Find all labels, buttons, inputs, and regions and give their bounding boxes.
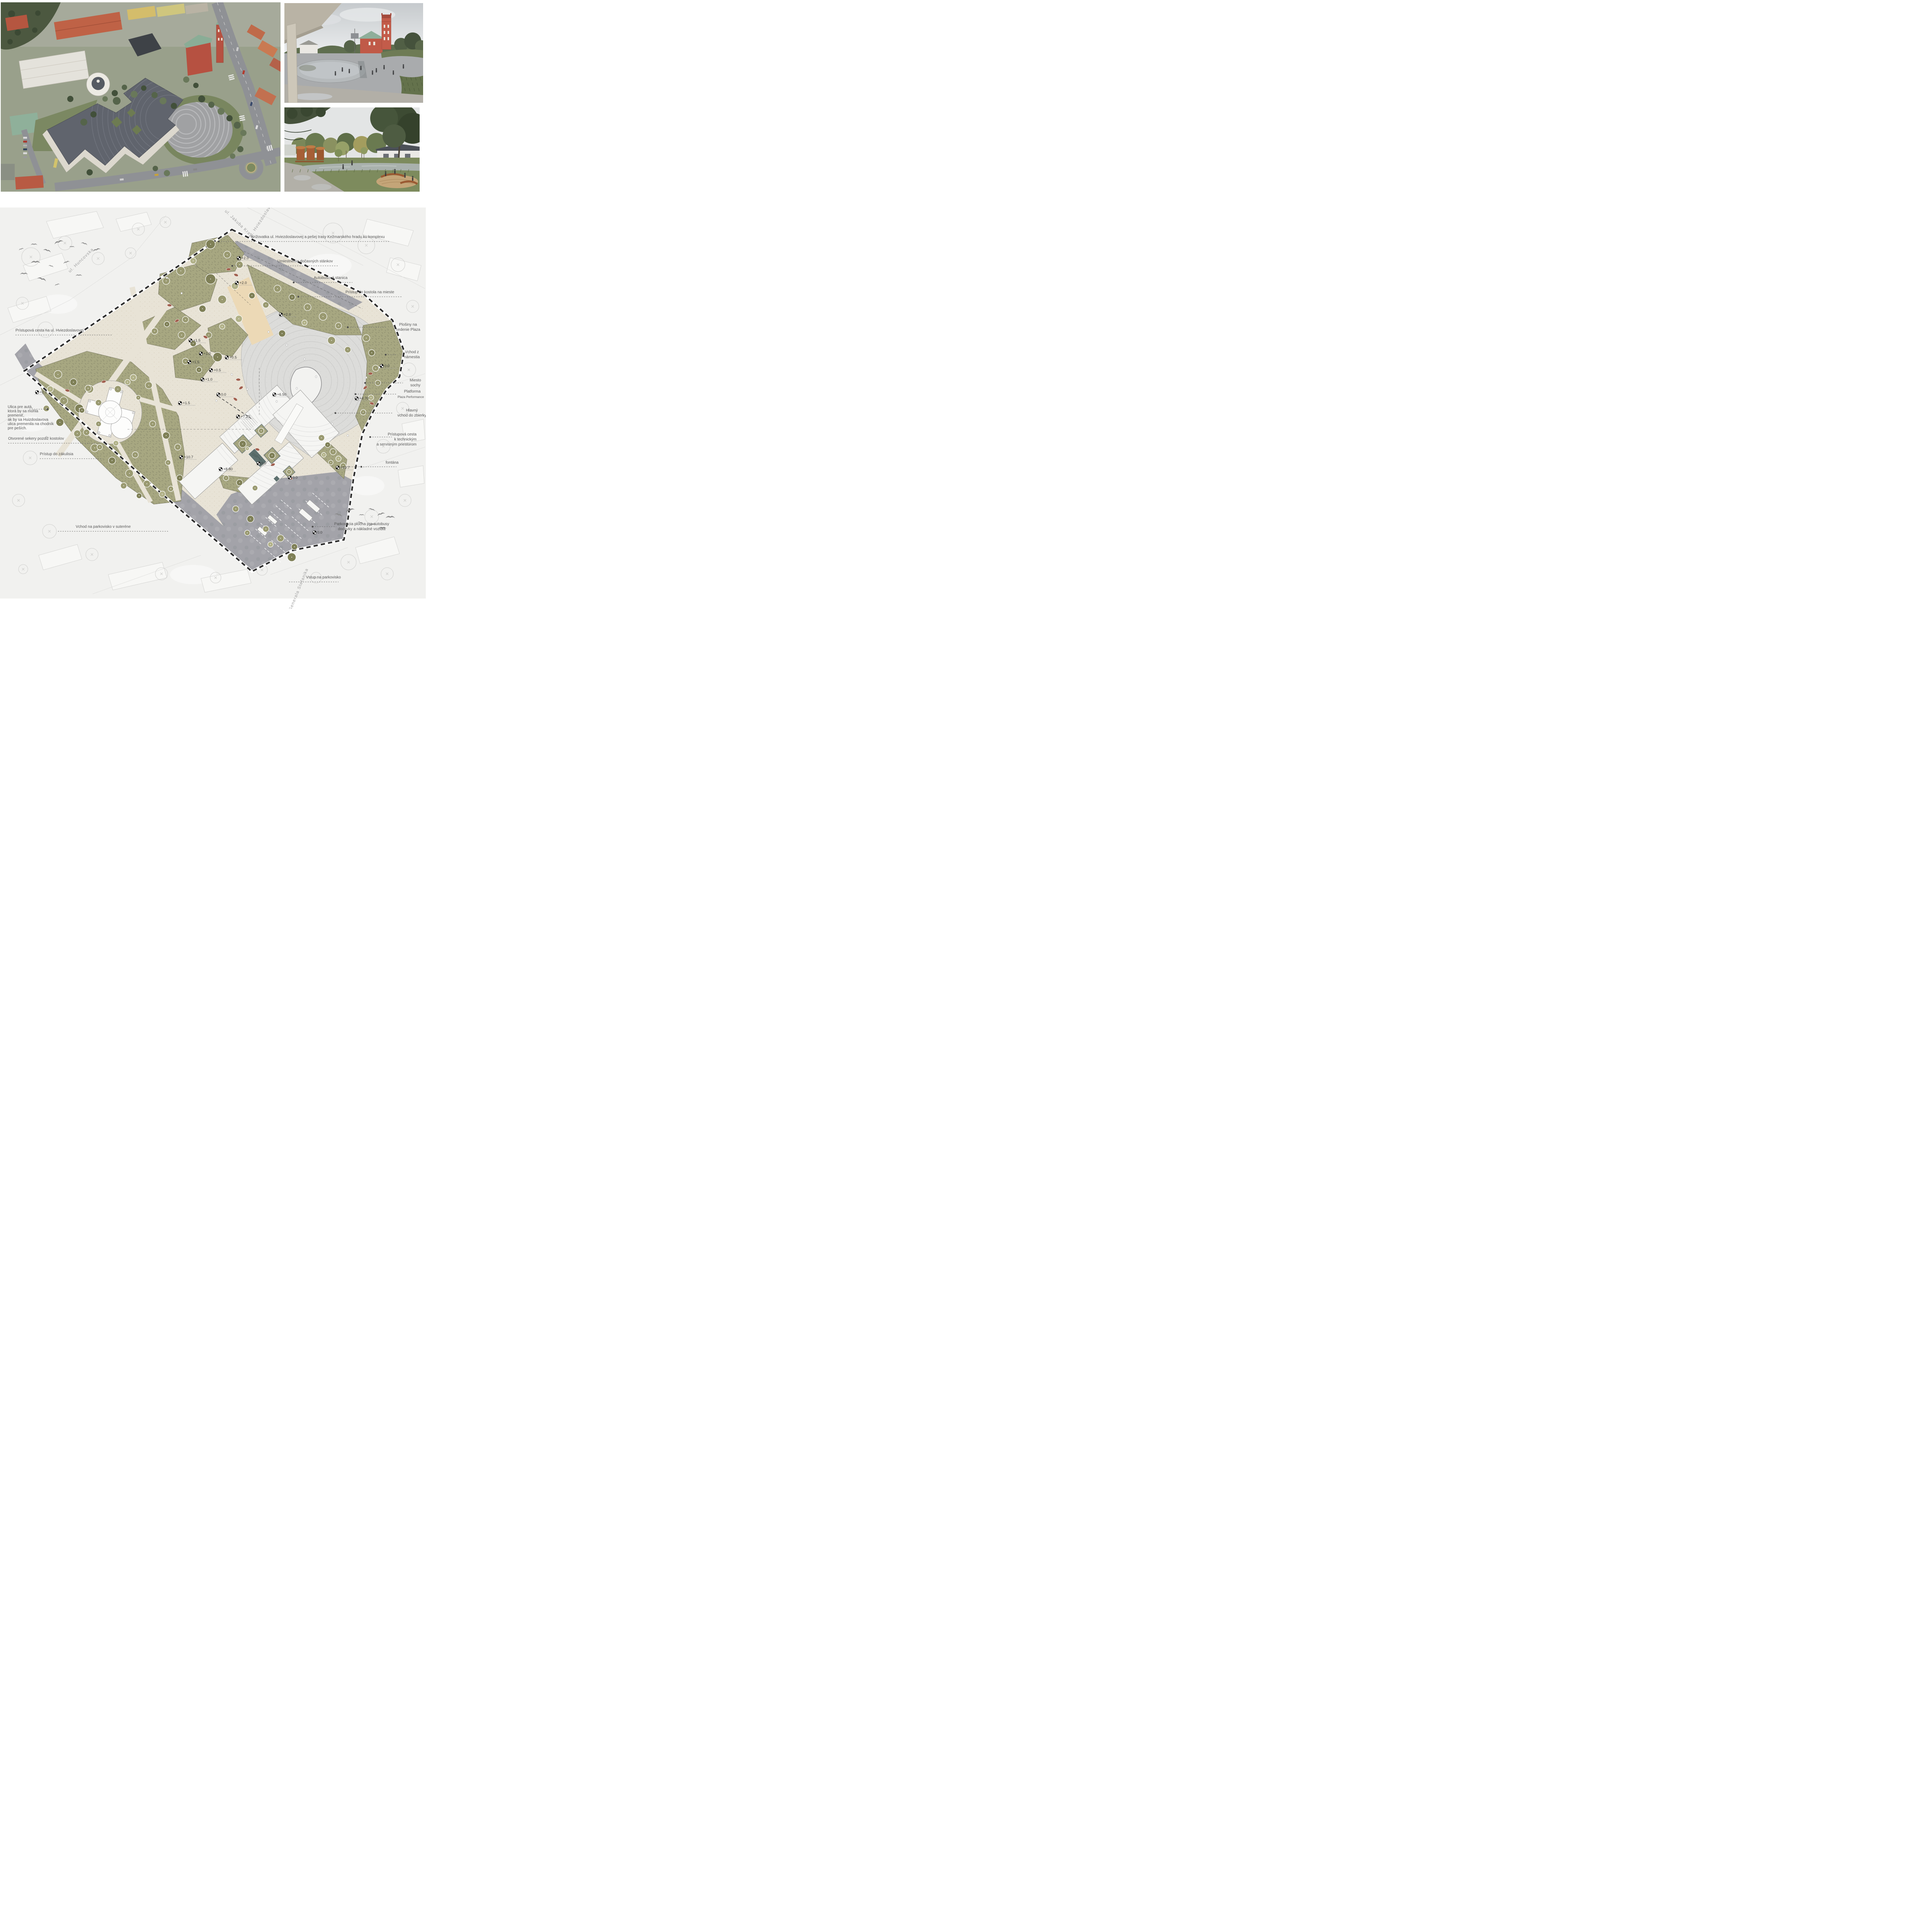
elevation-value: +2.0 [284,313,291,317]
tree [235,315,242,322]
distant-building [284,145,296,155]
tree [328,460,333,465]
leader-dot [364,382,366,384]
label-text: Plaza Performance [398,395,424,399]
tree [122,85,127,90]
tree [168,486,173,492]
tree [218,108,224,115]
elevation-value: 0.0 [221,393,226,397]
elevation-value: +0.5 [214,368,221,372]
tree [245,447,249,451]
tree [206,240,215,249]
tree [263,302,269,308]
tree [233,506,239,512]
tree [190,258,196,264]
tree [230,153,235,159]
tree [171,103,177,109]
person-figure [366,376,367,378]
person-figure [216,400,217,401]
tree [175,444,181,450]
tree [198,95,205,102]
tree [208,102,214,108]
aerial-photo [1,2,281,192]
tree [369,350,375,356]
tree [304,304,311,311]
tree [74,430,81,437]
tree [247,515,254,522]
tree [287,553,296,561]
label-text: Prístup do zákulisia [40,452,73,456]
tree [287,469,291,474]
leader-dot [293,282,295,284]
person-silhouette [360,66,361,70]
tree [206,274,216,284]
tree [90,111,97,117]
leader-dot [47,408,49,410]
tree [236,480,243,486]
sign-boards [351,33,359,39]
tree-reflection [299,65,316,71]
tree [218,295,226,304]
park-photo [284,107,420,192]
tree [328,337,335,344]
tree [97,444,102,450]
tree [153,166,158,171]
tree [277,535,284,542]
person-figure [315,376,317,378]
tree [80,119,87,126]
plan-label: Plaza Performance [398,395,424,399]
tree [259,428,264,434]
elevation-value: 0.0 [261,461,266,466]
elevation-value: +2.0 [240,281,247,285]
elevation-value: +1.0 [204,352,211,356]
leader-dot [298,296,299,298]
tree [372,365,379,371]
person-silhouette [385,171,386,176]
elevation-value: +7.20 [241,415,250,419]
person-silhouette [342,67,343,71]
label-text: Autobusová stanica [314,276,348,280]
tree [219,324,225,329]
tree [249,293,255,299]
tree [268,542,273,547]
tree [368,395,374,400]
tree [363,335,370,342]
elevation-value: +10.7 [340,466,350,470]
tree [141,85,146,91]
site-plan: ul. Jakuba Krayaul. Hviezdoslavovaul. Hu… [0,207,426,609]
tree [159,491,165,497]
tree [85,385,91,391]
tree [160,97,167,104]
elevation-value: +4.70 [359,396,369,401]
person-silhouette [404,173,406,178]
tree [163,432,170,439]
tree [319,313,327,320]
person-figure [268,331,269,333]
tree [344,40,356,53]
tree [102,96,108,102]
church-tower [381,13,391,49]
tree [136,493,142,498]
tree [237,146,243,152]
tree [47,386,53,392]
leader-dot [385,354,387,356]
tree [60,397,68,405]
tree [318,435,325,441]
tree [269,452,275,459]
tree [143,480,150,487]
tree [279,330,286,337]
elevation-value: 0.0 [384,364,389,368]
tree [224,251,231,258]
tree [239,440,246,447]
person-silhouette [335,71,336,75]
tree [43,405,49,412]
tree [113,97,121,105]
label-text: Otvorené sekery pozdĺž kostolov [8,436,64,441]
tree [178,332,185,338]
tree [145,382,152,389]
person-figure [347,434,349,436]
tree [177,475,183,481]
tree [177,267,185,275]
elevation-value: +2.0 [40,390,47,395]
leader-dot [312,526,314,528]
tree [213,352,222,362]
tree [125,379,130,385]
label-text: Vchod na parkovisko v suteréne [76,525,131,529]
tree [336,456,341,461]
label-text: Vstup na parkovisko [306,575,341,580]
tree [136,395,141,400]
elevation-value: +10.7 [184,455,193,459]
label-text: fontána [386,461,399,465]
tree [132,452,138,458]
person-silhouette [394,169,396,174]
person-figure [286,344,287,346]
canopy-column [287,23,298,103]
person-silhouette [342,164,344,169]
person-figure [181,292,182,294]
tree [223,475,229,481]
presentation-board: ul. Jakuba Krayaul. Hviezdoslavovaul. Hu… [0,0,426,609]
leader-dot [218,241,220,243]
tree [150,421,156,427]
tree [193,83,199,88]
label-text: Prístupová cesta na ul. Hviezdoslavovej [15,328,84,333]
label-text: Platforma [404,389,421,394]
wet-patch [311,184,332,190]
person-figure [166,277,168,279]
tree [164,321,170,327]
tree [226,115,233,121]
tree [321,452,326,457]
elevation-value: +8.80 [223,467,233,471]
tree [70,379,77,386]
tree [335,323,342,329]
tree [96,421,101,427]
tree [274,285,281,292]
roundabout-center [247,163,256,172]
label-text: Umiestnenie dočasných stánkov [277,259,333,264]
tree [263,526,269,532]
tree [151,92,158,98]
tree [291,544,298,550]
leader-dot [369,436,371,438]
elevation-value: +1.5 [183,401,190,405]
puddle [294,93,332,100]
leader-dot [335,412,337,414]
elevation-value: +2.0 [241,256,249,260]
tree [182,316,189,323]
tree [56,418,64,426]
tree [302,320,307,325]
tree [164,170,170,176]
tree [196,367,202,372]
leader-dot [231,265,233,267]
wet-patch [294,175,311,180]
person-silhouette [372,70,373,75]
tree [345,347,351,353]
person-figure [247,388,248,390]
tree [151,328,158,334]
elevation-value: +1.5 [192,360,199,364]
person-silhouette [403,64,404,68]
person-figure [296,387,298,389]
elevation-value: +6.50 [277,393,286,397]
tree [199,305,206,312]
person-silhouette [376,68,377,72]
leader-dot [361,466,362,468]
leaves [316,107,326,117]
tree [330,449,336,455]
person-silhouette [412,176,413,181]
person-figure [304,358,305,360]
label-text: Križovatka ul. Hviezdoslavovej a pešej t… [251,235,385,239]
person-silhouette [383,65,384,69]
tree [325,442,330,447]
label-text: Prístup do kostola na mieste [345,290,395,294]
elevation-value: +0.5 [230,355,237,360]
tree [113,440,119,446]
tree [67,96,73,102]
tree [130,374,136,381]
tree [114,386,121,393]
kiosks [295,145,325,162]
tree [109,457,116,464]
tree [54,371,62,378]
tree [236,261,243,268]
tree [126,469,133,477]
person-silhouette [349,69,350,73]
tree [87,169,93,175]
leaves [287,108,298,119]
tree [183,77,189,83]
leader-dot [355,393,357,395]
tree [289,294,295,300]
person-figure [276,400,277,402]
white-house [300,45,318,53]
tree [252,485,258,491]
tree [234,122,241,129]
person-silhouette [393,70,394,75]
tree [79,408,85,413]
tree [83,429,90,435]
plaza-photo [284,3,423,103]
elevation-value: 0.0 [317,531,322,535]
tree [131,91,138,98]
tree [240,130,247,136]
tree [245,530,250,536]
person-silhouette [351,160,353,165]
elevation-value: +1.5 [193,338,201,343]
round-church [87,73,110,96]
person-figure [332,423,333,425]
person-figure [231,373,233,375]
tree [361,410,366,415]
elevation-value: +1.0 [205,378,213,382]
elevation-value: 0.0 [293,476,298,480]
leader-dot [347,327,349,328]
tree [121,483,127,489]
tree [165,460,171,465]
tree [112,90,118,96]
tree [95,400,102,406]
